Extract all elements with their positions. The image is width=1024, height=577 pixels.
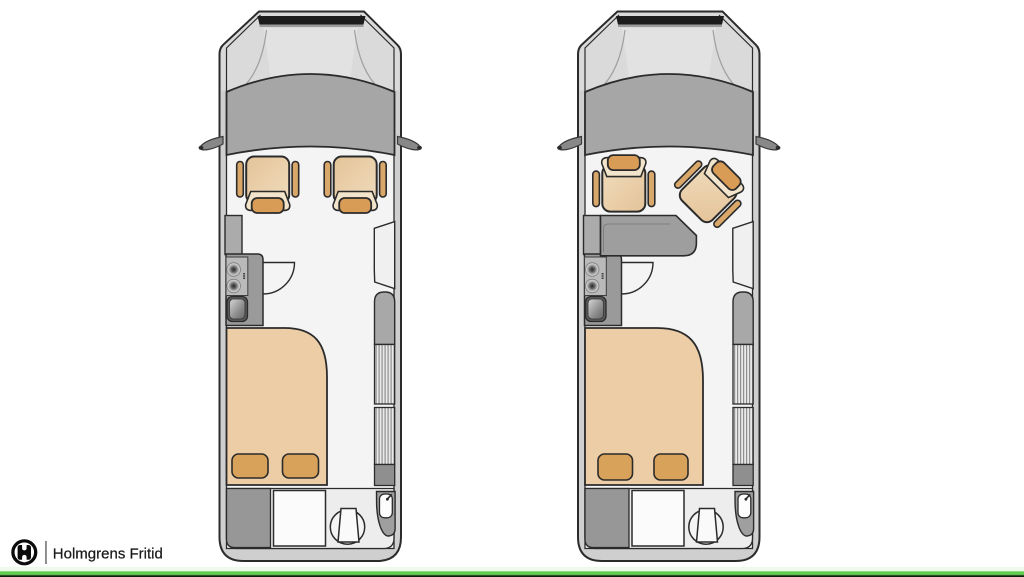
svg-text:Holmgrens Fritid: Holmgrens Fritid — [53, 546, 163, 563]
